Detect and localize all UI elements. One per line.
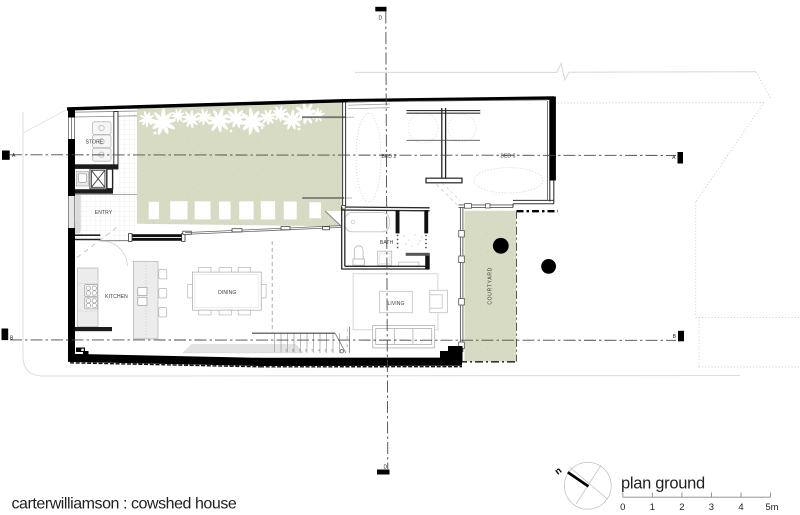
svg-text:7: 7 bbox=[299, 349, 301, 353]
svg-text:8: 8 bbox=[292, 349, 294, 353]
svg-text:D: D bbox=[379, 16, 383, 22]
svg-text:plan ground: plan ground bbox=[621, 475, 705, 493]
svg-text:carterwilliamson : cowshed hou: carterwilliamson : cowshed house bbox=[12, 496, 237, 513]
svg-text:2: 2 bbox=[347, 336, 349, 340]
svg-text:2: 2 bbox=[679, 502, 684, 513]
svg-text:2: 2 bbox=[331, 349, 333, 353]
svg-text:BED 2: BED 2 bbox=[381, 154, 396, 160]
svg-text:DINING: DINING bbox=[218, 290, 236, 296]
svg-text:4: 4 bbox=[738, 502, 743, 513]
svg-text:ENTRY: ENTRY bbox=[95, 210, 113, 216]
svg-text:LIVING: LIVING bbox=[387, 301, 404, 307]
svg-text:BATH: BATH bbox=[380, 240, 394, 246]
svg-text:4: 4 bbox=[318, 349, 320, 353]
svg-text:3: 3 bbox=[347, 344, 349, 348]
svg-text:9: 9 bbox=[286, 349, 288, 353]
svg-text:BED 3: BED 3 bbox=[500, 154, 515, 160]
svg-text:1: 1 bbox=[650, 502, 655, 513]
svg-text:6: 6 bbox=[305, 349, 307, 353]
svg-text:KITCHEN: KITCHEN bbox=[105, 294, 128, 300]
svg-text:3: 3 bbox=[325, 349, 327, 353]
svg-text:STORE: STORE bbox=[86, 140, 104, 146]
svg-text:5m: 5m bbox=[765, 502, 778, 513]
svg-text:COURTYARD: COURTYARD bbox=[488, 267, 494, 305]
svg-text:0: 0 bbox=[620, 502, 625, 513]
svg-text:1: 1 bbox=[347, 329, 349, 333]
svg-text:3: 3 bbox=[709, 502, 714, 513]
svg-text:D: D bbox=[384, 465, 388, 471]
svg-text:5: 5 bbox=[312, 349, 314, 353]
